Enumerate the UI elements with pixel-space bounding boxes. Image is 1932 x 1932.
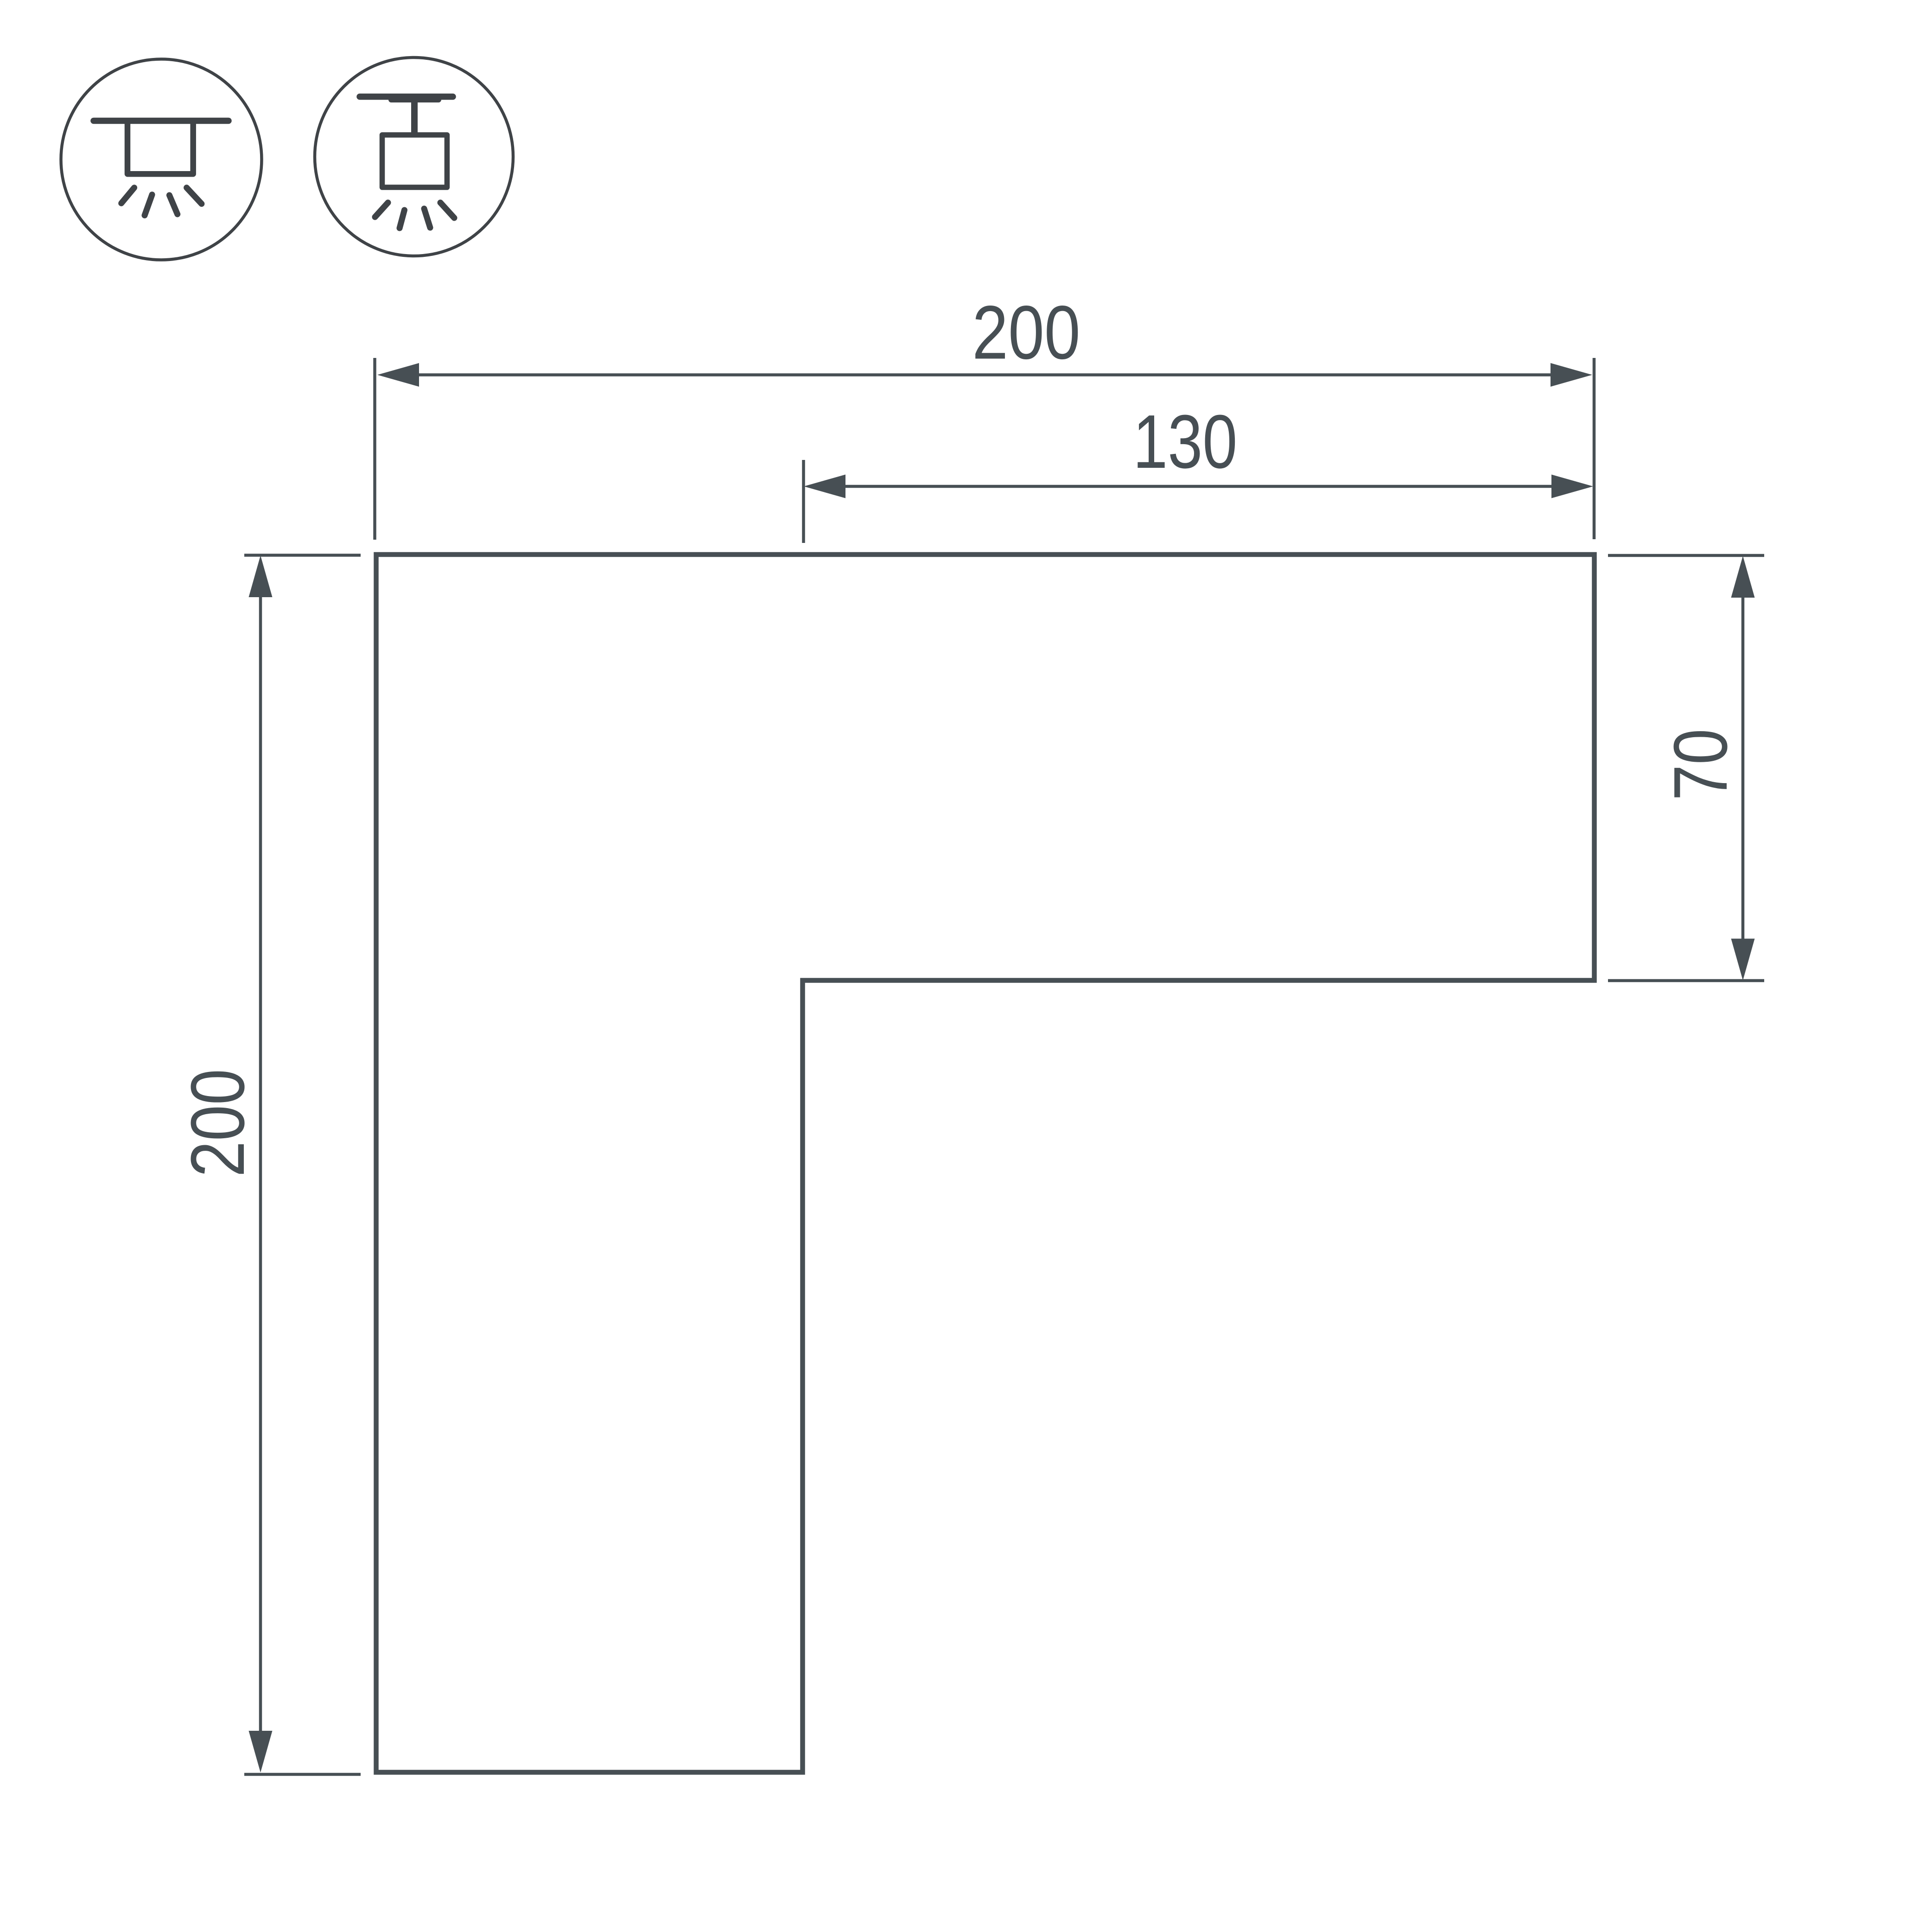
svg-text:70: 70 [1658,729,1743,801]
svg-text:130: 130 [1133,399,1237,484]
svg-text:200: 200 [176,1069,261,1177]
svg-text:200: 200 [972,290,1080,375]
